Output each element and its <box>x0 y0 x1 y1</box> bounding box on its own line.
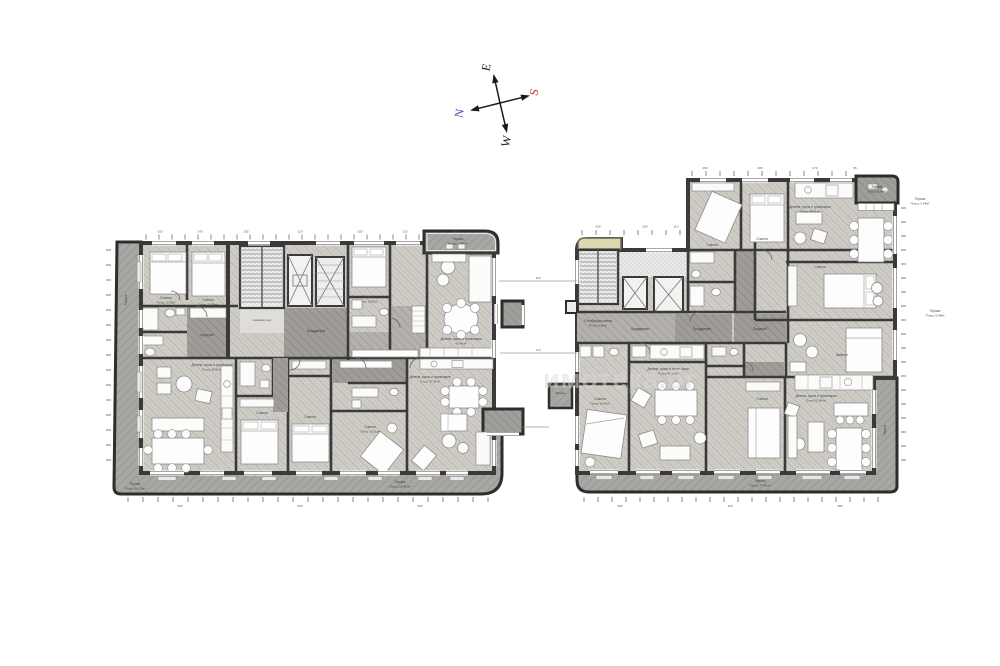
svg-text:Площ: 77.56 м²: Площ: 77.56 м² <box>749 484 770 488</box>
svg-text:Спалня: Спалня <box>160 296 172 300</box>
svg-text:Дневна, кухня и трапезария: Дневна, кухня и трапезария <box>409 375 451 379</box>
svg-text:420: 420 <box>595 225 600 229</box>
svg-text:Площ: 48.32 м²: Площ: 48.32 м² <box>800 210 820 214</box>
svg-text:Площ: 15.96 м²: Площ: 15.96 м² <box>702 248 722 252</box>
svg-text:180: 180 <box>452 230 457 234</box>
svg-text:Стълбищна клетка: Стълбищна клетка <box>584 319 612 323</box>
svg-text:Тераса: Тераса <box>872 185 883 189</box>
svg-text:Тераса: Тераса <box>930 309 941 313</box>
svg-text:Кабинет: Кабинет <box>836 353 849 357</box>
svg-text:Тераса: Тераса <box>130 482 141 486</box>
svg-text:Гардероб: Гардероб <box>753 327 767 331</box>
svg-text:330: 330 <box>357 230 362 234</box>
svg-text:395: 395 <box>535 276 540 280</box>
svg-text:42.48 м²: 42.48 м² <box>455 342 466 346</box>
svg-text:215: 215 <box>402 230 407 234</box>
svg-text:Спалня: Спалня <box>362 295 374 299</box>
svg-text:Площ: 13.39м²: Площ: 13.39м² <box>199 303 218 307</box>
svg-text:Дневна, кухня и трапезария: Дневна, кухня и трапезария <box>789 205 831 209</box>
svg-text:95: 95 <box>853 166 857 170</box>
svg-text:Спалня: Спалня <box>594 397 605 401</box>
svg-text:Дневна, кухня и трапезария: Дневна, кухня и трапезария <box>440 337 482 341</box>
svg-text:Площ: 2.44 м²: Площ: 2.44 м² <box>448 242 467 246</box>
svg-text:250: 250 <box>702 166 707 170</box>
svg-text:Преддверие: Преддверие <box>307 329 325 333</box>
svg-text:Преддверие: Преддверие <box>693 327 711 331</box>
svg-text:имотека.бг: имотека.бг <box>543 364 697 394</box>
svg-text:Тераса: Тераса <box>395 480 406 484</box>
svg-text:Площ: 10.31м²: Площ: 10.31м² <box>361 430 380 434</box>
svg-text:Тераса: Тераса <box>755 479 766 483</box>
svg-text:Тераса: Тераса <box>124 295 128 306</box>
svg-text:Сервизно пом.: Сервизно пом. <box>252 318 271 322</box>
svg-text:Тераса: Тераса <box>915 197 926 201</box>
svg-text:Спалня: Спалня <box>364 425 375 429</box>
svg-text:Площ: 56.27м²: Площ: 56.27м² <box>125 487 145 491</box>
svg-text:390: 390 <box>417 504 422 508</box>
svg-text:Площ: 52.88 м²: Площ: 52.88 м² <box>806 399 826 403</box>
svg-text:Спалня: Спалня <box>756 397 767 401</box>
svg-text:325: 325 <box>157 230 162 234</box>
svg-text:Гардероб: Гардероб <box>200 333 214 337</box>
svg-text:Преддверие: Преддверие <box>631 327 649 331</box>
svg-text:Тераса: Тераса <box>453 237 464 241</box>
svg-text:260: 260 <box>642 225 647 229</box>
svg-text:460: 460 <box>177 504 182 508</box>
svg-text:380: 380 <box>617 504 622 508</box>
svg-text:Спалня: Спалня <box>756 237 767 241</box>
svg-text:270: 270 <box>812 166 817 170</box>
svg-text:Площ: 20.81м²: Площ: 20.81м² <box>591 402 610 406</box>
svg-text:Спалня: Спалня <box>706 243 717 247</box>
svg-text:385: 385 <box>837 504 842 508</box>
svg-text:Площ: 5.04м²: Площ: 5.04м² <box>926 314 945 318</box>
svg-text:505: 505 <box>297 504 302 508</box>
svg-text:Спалня: Спалня <box>256 411 267 415</box>
svg-text:420: 420 <box>727 504 732 508</box>
svg-text:Спалня: Спалня <box>814 265 825 269</box>
svg-text:Площ: 3.44м²: Площ: 3.44м² <box>911 202 930 206</box>
svg-text:110: 110 <box>674 225 679 229</box>
svg-text:Площ: 12.56м²: Площ: 12.56м² <box>157 301 176 305</box>
svg-text:Площ: 9.81м²: Площ: 9.81м² <box>589 324 606 328</box>
svg-text:744: 744 <box>535 348 540 352</box>
svg-text:120: 120 <box>297 230 302 234</box>
svg-text:305: 305 <box>757 166 762 170</box>
svg-text:Площ: 19.85 м²: Площ: 19.85 м² <box>389 485 410 489</box>
svg-text:Площ: 45.86 м²: Площ: 45.86 м² <box>202 368 222 372</box>
svg-text:Дневна, кухня и трапезария: Дневна, кухня и трапезария <box>795 394 837 398</box>
svg-text:Тераса: Тераса <box>883 425 887 436</box>
svg-text:Площ: 37.08 м²: Площ: 37.08 м² <box>420 380 440 384</box>
svg-text:Спалня: Спалня <box>202 298 214 302</box>
svg-text:140: 140 <box>197 230 202 234</box>
svg-text:255: 255 <box>243 230 248 234</box>
svg-text:Спалня: Спалня <box>304 415 315 419</box>
svg-text:Площ: 9.04м²: Площ: 9.04м² <box>868 190 887 194</box>
